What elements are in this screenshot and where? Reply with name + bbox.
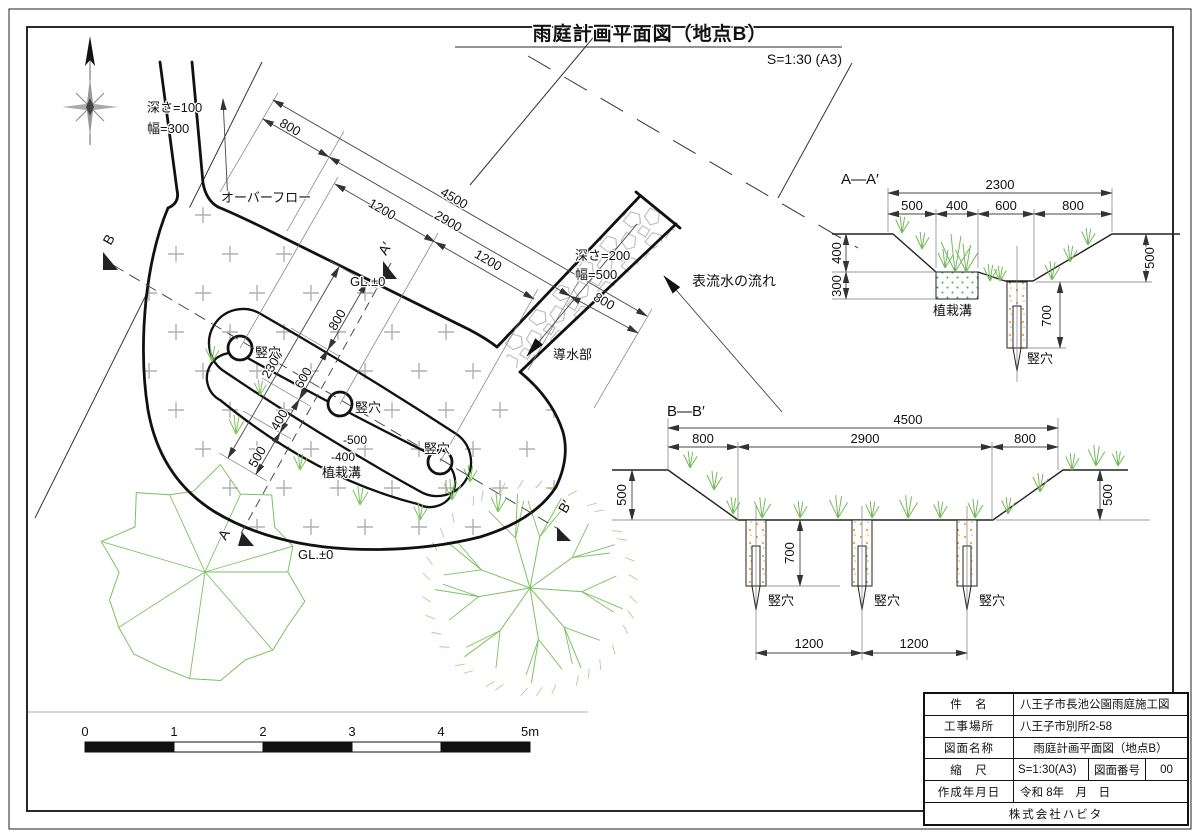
bb-ground [612, 470, 1128, 520]
surface-flow-label: 表流水の流れ [692, 273, 776, 289]
grass-tuft [900, 495, 918, 518]
dim-aa-500: 500 [901, 198, 923, 213]
level-label-minus500: -500 [343, 433, 367, 447]
drawing-scale-note: S=1:30 (A3) [767, 51, 842, 67]
section-arrow-a [238, 532, 254, 546]
road-centerline-dashed [528, 56, 858, 248]
title-block-row: 株式会社ハビタ [925, 803, 1187, 824]
drawing-title: 雨庭計画平面図（地点B） [533, 22, 768, 45]
grass-tuft [684, 451, 698, 468]
section-mark-a-prime: A′ [375, 239, 395, 258]
title-block-row: 件 名 八王子市長池公園雨庭施工図 [925, 694, 1187, 716]
field-value: 八王子市別所2-58 [1014, 716, 1187, 737]
scale-tick-label: 1 [170, 724, 177, 739]
planting-label-plan: 植栽溝 [322, 465, 361, 480]
section-bb [612, 418, 1150, 660]
grass-tuft [916, 232, 930, 249]
dim-aa-400: 400 [946, 198, 968, 213]
bb-pits [746, 506, 977, 660]
field-value: 八王子市長池公園雨庭施工図 [1014, 694, 1187, 715]
conduit-label: 導水部 [553, 347, 592, 362]
title-block: 件 名 八王子市長池公園雨庭施工図 工事場所 八王子市別所2-58 図面名称 雨… [923, 692, 1189, 826]
dim-aa-2300: 2300 [986, 177, 1015, 192]
scale-tick-label: 2 [259, 724, 266, 739]
dim-bb-800l: 800 [692, 431, 714, 446]
field-value: 00 [1146, 759, 1187, 780]
field-label: 件 名 [925, 694, 1014, 715]
section-aa [832, 188, 1180, 382]
level-label-minus400: -400 [331, 450, 355, 464]
section-mark-b-prime: B′ [555, 497, 575, 516]
dim-bb-1200l: 1200 [795, 636, 824, 651]
dim-bb-800r: 800 [1014, 431, 1036, 446]
dim-1200-left: 1200 [366, 195, 399, 222]
gl-label-bottom: GL.±0 [298, 547, 333, 562]
grass-tuft [1066, 453, 1080, 470]
dim-bb-500l: 500 [614, 484, 629, 506]
field-value: 雨庭計画平面図（地点B） [1014, 738, 1187, 759]
dim-aa-400v: 400 [829, 242, 844, 264]
pit-label-plan-1: 竪穴 [255, 345, 281, 360]
inflow-note-depth: 深さ=100 [147, 100, 202, 115]
aa-ground-left [832, 234, 936, 272]
grass-tuft [1082, 228, 1096, 245]
dim-1200-right: 1200 [472, 246, 505, 273]
pit-label-bb-3: 竪穴 [979, 593, 1005, 608]
dim-aa-500v: 500 [1142, 247, 1157, 269]
section-mark-a: A [214, 526, 233, 543]
dim-bb-700: 700 [782, 542, 797, 564]
aa-planting-trench [936, 272, 978, 299]
inflow-note-width: 幅=300 [147, 121, 189, 136]
dim-bb-4500: 4500 [894, 412, 923, 427]
field-value: 令和 8年 月 日 [1014, 781, 1187, 802]
grass-tuft [968, 499, 983, 518]
grass-tuft [830, 495, 848, 518]
overflow-label: オーバーフロー [221, 190, 311, 205]
grass-tuft [707, 471, 722, 490]
dim-aa-800: 800 [1062, 198, 1084, 213]
overflow-channel-right-edge [192, 62, 218, 207]
pit-label-plan-3: 竪穴 [424, 441, 450, 456]
grass-tuft [794, 501, 808, 518]
pit-label-plan-2: 竪穴 [355, 400, 381, 415]
section-arrow-b-prime [557, 527, 571, 541]
title-block-row: 縮 尺 S=1:30(A3) 図面番号 00 [925, 759, 1187, 781]
conduit-note-width: 幅=500 [575, 267, 617, 282]
grass-tuft [754, 497, 771, 518]
grass-tuft [1045, 261, 1060, 280]
grass-tuft [1112, 451, 1124, 466]
dim-4500: 4500 [438, 184, 471, 211]
grass-tuft [1064, 245, 1078, 262]
field-label: 図面番号 [1089, 759, 1146, 780]
grass-tuft [896, 216, 910, 233]
section-arrow-b [103, 252, 118, 270]
section-aa-title: A—A′ [841, 171, 879, 188]
scale-tick-label: 3 [348, 724, 355, 739]
planting-label-aa: 植栽溝 [933, 303, 972, 318]
grass-tuft [1088, 445, 1105, 466]
dim-bb-1200r: 1200 [900, 636, 929, 651]
dim-bb-2900: 2900 [851, 431, 880, 446]
company-name: 株式会社ハビタ [925, 803, 1187, 824]
title-block-row: 作成年月日 令和 8年 月 日 [925, 781, 1187, 803]
scale-tick-label: 4 [437, 724, 444, 739]
pit-label-bb-2: 竪穴 [874, 593, 900, 608]
dim-aa-700v: 700 [1039, 305, 1054, 327]
dim-aa-300v: 300 [829, 275, 844, 297]
aa-grass [896, 216, 1095, 281]
field-label: 作成年月日 [925, 781, 1014, 802]
dim-aa-600: 600 [995, 198, 1017, 213]
conduit-flow-arrow [527, 224, 637, 356]
grass-tuft [934, 501, 948, 518]
overflow-direction-arrow [223, 99, 228, 204]
plan-view [101, 62, 782, 696]
conduit-stone-fill [497, 196, 679, 372]
field-label: 縮 尺 [925, 759, 1014, 780]
grass-tuft [1002, 497, 1016, 514]
grass-tuft [866, 501, 880, 518]
dim-bb-500r: 500 [1100, 484, 1115, 506]
conduit-note-depth: 深さ=200 [575, 248, 630, 263]
scale-tick-label: 0 [81, 724, 88, 739]
section-bb-title: B—B′ [667, 403, 705, 420]
north-compass-icon [62, 36, 118, 145]
section-mark-b: B [99, 231, 118, 247]
drawing-sheet: 012345m 雨庭計画平面図（地点B）S=1:30 (A3)深さ=100幅=3… [0, 0, 1200, 838]
scale-bar: 012345m [81, 724, 539, 752]
surface-flow-arrow [664, 276, 782, 412]
field-label: 工事場所 [925, 716, 1014, 737]
pit-label-aa: 竪穴 [1027, 351, 1053, 366]
gl-label-top: GL.±0 [350, 274, 385, 289]
dim-800-top-left: 800 [277, 115, 303, 139]
title-block-row: 図面名称 雨庭計画平面図（地点B） [925, 738, 1187, 760]
dim-2900: 2900 [432, 207, 465, 234]
field-value: S=1:30(A3) [1014, 759, 1089, 780]
field-label: 図面名称 [925, 738, 1014, 759]
pit-label-bb-1: 竪穴 [768, 593, 794, 608]
title-block-row: 工事場所 八王子市別所2-58 [925, 716, 1187, 738]
scale-tick-label: 5m [521, 724, 539, 739]
